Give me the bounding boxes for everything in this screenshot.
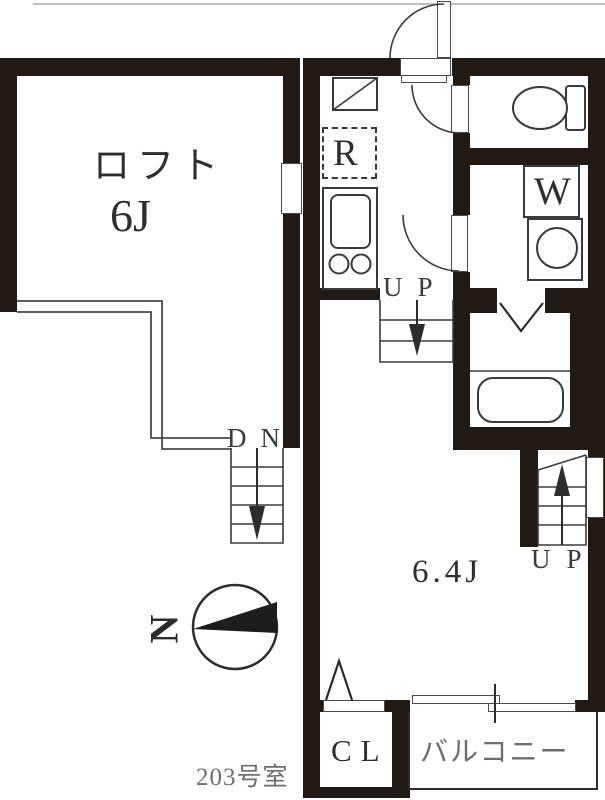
north-letter: N: [144, 615, 184, 644]
floorplan-canvas: ロフト 6J R W UP DN UP 6.4J CL バルコニー 203号室 …: [0, 0, 605, 800]
loft-room-label: ロフト: [93, 148, 225, 185]
loft-void-outline-inner: [17, 312, 231, 438]
stairs-up-right-label: UP: [531, 546, 598, 573]
stove-burner-left: [330, 255, 349, 274]
floorplan-linework: [0, 0, 605, 800]
washing-machine-drum: [537, 228, 577, 268]
washer-label: W: [534, 172, 571, 211]
stairs-down-loft: [231, 448, 283, 543]
loft-void-outline-outer: [17, 301, 231, 449]
closet-door-arrow: [326, 661, 352, 700]
north-symbol: [193, 585, 277, 669]
bath-door-arrow: [500, 303, 543, 331]
closet-label: CL: [331, 735, 389, 766]
room-number-label: 203号室: [196, 765, 289, 790]
toilet-bowl: [513, 87, 567, 129]
shoe-cabinet-diagonal: [333, 78, 377, 110]
stairs-up-right: [538, 455, 586, 545]
laundry-door-arc: [403, 215, 459, 271]
stairs-up-center: [380, 300, 453, 362]
loft-size-label: 6J: [110, 193, 151, 239]
north-wedge: [193, 602, 277, 633]
entrance-door-arc: [390, 4, 444, 58]
stairs-down-label: DN: [227, 425, 294, 452]
stove-burner-right: [352, 255, 371, 274]
balcony-label: バルコニー: [420, 739, 569, 767]
main-room-size-label: 6.4J: [412, 556, 482, 589]
toilet-door-arc: [412, 85, 460, 133]
stairs-up-center-label: UP: [383, 274, 448, 301]
refrigerator-label: R: [333, 135, 358, 172]
